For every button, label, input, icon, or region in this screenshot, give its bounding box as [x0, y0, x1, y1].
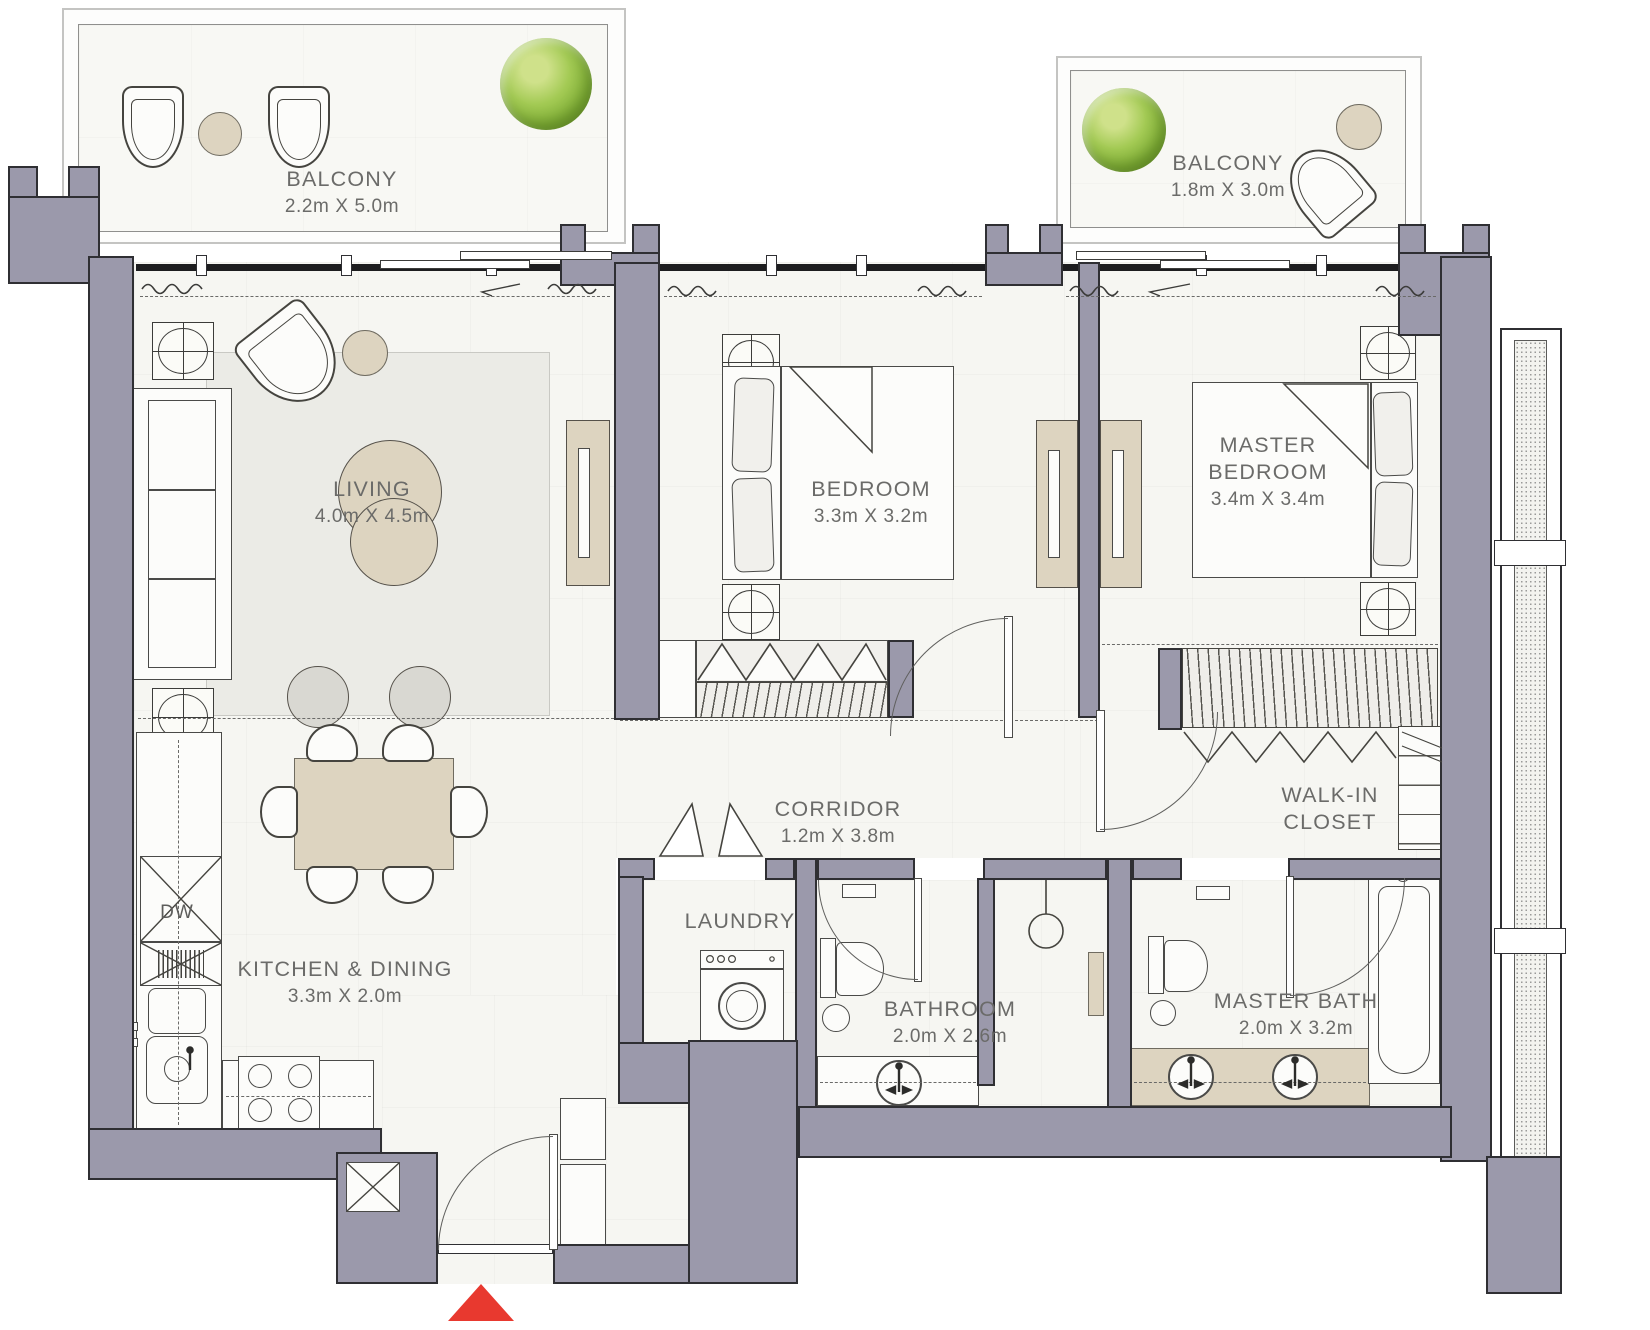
room-name: LAUNDRY [685, 908, 796, 935]
room-name: KITCHEN & DINING [237, 956, 452, 983]
living-window-wall [136, 264, 614, 271]
toilet [1164, 940, 1208, 992]
wall-masterbath [1132, 858, 1182, 880]
van-sink [1168, 1054, 1214, 1100]
bedroom-wardrobe-doors [696, 640, 888, 682]
sofa-cushion-line [149, 489, 215, 491]
window-mullion [766, 255, 777, 276]
room-name: BALCONY [1171, 150, 1285, 177]
curtain-line [1066, 296, 1436, 297]
living-label: LIVING 4.0m X 4.5m [315, 476, 429, 530]
pillow [731, 377, 774, 472]
wall-right [1440, 256, 1492, 1162]
room-name: MASTER [1208, 432, 1328, 459]
master-bedroom-label: MASTER BEDROOM 3.4m X 3.4m [1208, 432, 1328, 513]
vanity-line [1134, 1082, 1366, 1083]
dining-chair [450, 786, 488, 838]
curtain-line [664, 296, 982, 297]
wall-laundry-bath [795, 858, 817, 1108]
room-name: BEDROOM [1208, 459, 1328, 486]
burner [248, 1098, 272, 1122]
sink-drain [164, 1056, 190, 1082]
wall-masterbath [1288, 858, 1442, 880]
bedroom-label: BEDROOM 3.3m X 3.2m [811, 476, 931, 530]
corridor-label: CORRIDOR 1.2m X 3.8m [775, 796, 902, 850]
balcony-sliding-door [1160, 260, 1290, 269]
walkin-closet-label: WALK-IN CLOSET [1281, 782, 1378, 836]
wall-bathroom [983, 858, 1107, 880]
floor-lamp-icon [152, 322, 214, 380]
shoe-cabinet [560, 1164, 606, 1252]
pillow [1373, 391, 1414, 476]
wall-under-laundry [618, 1042, 690, 1104]
room-name: WALK-IN [1281, 782, 1378, 809]
room-name: LIVING [315, 476, 429, 503]
wall-bath-bottom [798, 1106, 1452, 1158]
bathroom-label: BATHROOM 2.0m X 2.6m [884, 996, 1016, 1050]
pillow [731, 477, 774, 572]
vent-grill [158, 950, 204, 978]
balcony-left-label: BALCONY 2.2m X 5.0m [285, 166, 399, 220]
bedroom-cabinet [658, 640, 696, 718]
washer-panel [701, 968, 783, 970]
corridor-divider-line [620, 720, 1098, 721]
wall-laundry [765, 858, 795, 880]
sofa-cushion-line [149, 578, 215, 580]
floorplan-canvas: BALCONY 2.2m X 5.0m BALCONY 1.8m X 3.0m … [0, 0, 1650, 1330]
dresser-slot [1048, 450, 1060, 558]
balcony-sliding-door [1076, 251, 1206, 260]
room-dims: 2.0m X 2.6m [884, 1023, 1016, 1050]
walkin-closet-shelves [1398, 726, 1446, 850]
balcony-sliding-door [380, 260, 530, 269]
vanity-line [820, 1082, 976, 1083]
cistern [1196, 886, 1230, 900]
entrance-column [346, 1162, 400, 1212]
counter-centerline [178, 740, 179, 1125]
balcony-side-table [1336, 104, 1382, 150]
tree-icon [500, 38, 592, 130]
shower-bench [1088, 952, 1104, 1016]
hand-basin [822, 1004, 850, 1032]
dining-chair [260, 786, 298, 838]
hand-basin [1150, 1000, 1176, 1026]
room-name: CLOSET [1281, 809, 1378, 836]
window-mullion [341, 255, 352, 276]
burner [288, 1098, 312, 1122]
room-dims: 1.8m X 3.0m [1171, 177, 1285, 204]
wall-shower [977, 878, 995, 1086]
balcony-right-label: BALCONY 1.8m X 3.0m [1171, 150, 1285, 204]
bedroom-window-wall [660, 264, 987, 271]
nightstand-lamp-icon [1360, 582, 1416, 636]
toilet-tank [1148, 936, 1164, 994]
bedroom-wardrobe [696, 682, 888, 718]
wall-masterbath-left [1107, 858, 1132, 1108]
burner [248, 1064, 272, 1088]
master-vanity [1130, 1048, 1370, 1106]
kitchen-sink-small [148, 988, 206, 1034]
wall-entrance-side [688, 1040, 798, 1284]
room-dims: 3.3m X 3.2m [811, 503, 931, 530]
tv-screen [578, 448, 590, 558]
walkin-closet-rack [1182, 648, 1438, 728]
sofa-cushions [148, 400, 216, 668]
van-sink [1272, 1054, 1318, 1100]
wall-left [88, 256, 134, 1132]
wall-pier [1486, 1156, 1562, 1294]
room-dims: 3.4m X 3.4m [1208, 486, 1328, 513]
burner [288, 1064, 312, 1088]
wall-entrance-right [553, 1244, 695, 1284]
dining-table [294, 758, 454, 870]
counter-centerline [226, 1096, 371, 1097]
dishwasher [140, 856, 222, 942]
window-mullion [1494, 540, 1566, 566]
tree-icon [1082, 88, 1166, 172]
room-dims: 3.3m X 2.0m [237, 983, 452, 1010]
dishwasher-label: DW [160, 902, 194, 924]
room-name: BALCONY [285, 166, 399, 193]
shoe-cabinet [560, 1098, 606, 1160]
room-name: BATHROOM [884, 996, 1016, 1023]
room-dims: 4.0m X 4.5m [315, 503, 429, 530]
side-table [342, 330, 388, 376]
wall-pier [8, 196, 100, 284]
washer-door-inner [726, 990, 758, 1022]
toilet-tank [820, 938, 836, 998]
room-dims: 2.0m X 3.2m [1214, 1015, 1379, 1042]
bed-line [1370, 383, 1372, 577]
room-name: CORRIDOR [775, 796, 902, 823]
room-dims: 2.2m X 5.0m [285, 193, 399, 220]
wall-laundry-left [618, 876, 644, 1044]
wall-pier [985, 252, 1063, 286]
wall-bedroom-master [1078, 262, 1100, 718]
window-bay-glazing [1514, 340, 1547, 1280]
master-closet-divider-line [1102, 644, 1438, 645]
van-sink [876, 1060, 922, 1106]
room-name: MASTER BATH [1214, 988, 1379, 1015]
master-bath-label: MASTER BATH 2.0m X 3.2m [1214, 988, 1379, 1042]
wall-living-bedroom [614, 262, 660, 720]
window-mullion [196, 255, 207, 276]
window-mullion [1316, 255, 1327, 276]
curtain-line [140, 296, 610, 297]
living-kitchen-divider-line [138, 718, 614, 719]
appliance-name: DW [160, 902, 194, 924]
room-dims: 1.2m X 3.8m [775, 823, 902, 850]
window-mullion [856, 255, 867, 276]
dresser-slot [1112, 450, 1124, 558]
window-mullion [1494, 928, 1566, 954]
laundry-label: LAUNDRY [685, 908, 796, 935]
wall-bathroom [817, 858, 915, 880]
kitchen-dining-label: KITCHEN & DINING 3.3m X 2.0m [237, 956, 452, 1010]
entrance-arrow-icon [448, 1284, 514, 1321]
balcony-side-table [198, 112, 242, 156]
bed-line [780, 367, 782, 579]
balcony-sliding-door [460, 251, 612, 260]
pillow [1373, 481, 1414, 566]
room-name: BEDROOM [811, 476, 931, 503]
nightstand-lamp-icon [722, 584, 780, 640]
